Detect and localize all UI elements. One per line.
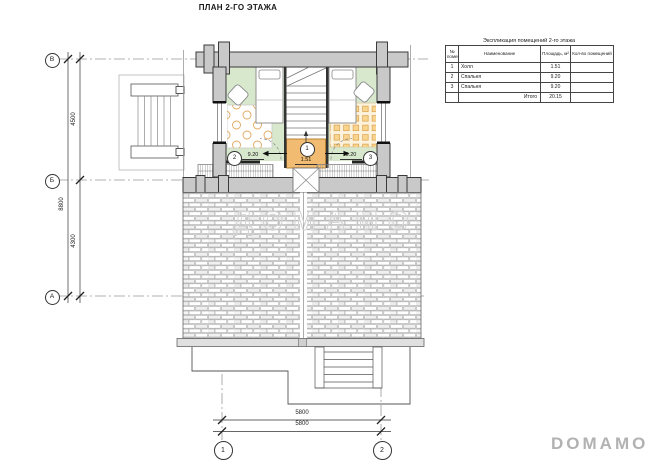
schedule-cell-num: 2	[446, 73, 459, 83]
schedule-cell-count	[571, 73, 614, 83]
schedule-cell-name: Спальня	[459, 83, 541, 93]
schedule-cell-count	[571, 63, 614, 73]
schedule-cell-area: 1.51	[541, 63, 571, 73]
room-number-bedroom-left: 2	[227, 151, 242, 166]
room-schedule-table: № помещения Наименование Площадь, м² Кол…	[445, 45, 614, 103]
room-area-bedroom-left: 9.20	[242, 152, 264, 160]
schedule-header-count: Кол-во помещений	[571, 46, 614, 63]
dim-left-upper: 4500	[70, 99, 78, 139]
axis-col-left: 1	[214, 441, 233, 460]
schedule-row: 1 Холл 1.51	[446, 63, 614, 73]
schedule-total-empty2	[571, 93, 614, 103]
left-dimension-lines	[68, 52, 80, 303]
dim-left-lower: 4300	[70, 221, 78, 261]
axis-row-top: В	[45, 53, 60, 68]
floor-plan-drawing: ПЛАН 2-ГО ЭТАЖА В Б А 1 2 4500 8800 4300…	[0, 0, 658, 470]
room-number-bedroom-right: 3	[363, 151, 378, 166]
schedule-header-name: Наименование	[459, 46, 541, 63]
schedule-cell-num: 3	[446, 83, 459, 93]
schedule-cell-name: Спальня	[459, 73, 541, 83]
page-title: ПЛАН 2-ГО ЭТАЖА	[158, 3, 318, 12]
axis-row-bottom: А	[45, 290, 60, 305]
dim-left-total: 8800	[58, 184, 66, 224]
exterior-ladder	[119, 75, 184, 170]
schedule-total-row: Итого 20.15	[446, 93, 614, 103]
porch-landing	[293, 168, 319, 193]
schedule-cell-area: 9.20	[541, 73, 571, 83]
schedule-cell-name: Холл	[459, 63, 541, 73]
dim-bottom-inner: 5800	[282, 421, 322, 428]
schedule-total-value: 20.15	[541, 93, 571, 103]
brand-logo: DOMAMO	[551, 434, 648, 454]
axis-col-right: 2	[373, 441, 392, 460]
room-area-hall: 1.51	[295, 157, 317, 165]
schedule-header-area: Площадь, м²	[541, 46, 571, 63]
schedule-header-row: № помещения Наименование Площадь, м² Кол…	[446, 46, 614, 63]
schedule-cell-count	[571, 83, 614, 93]
schedule-cell-num: 1	[446, 63, 459, 73]
schedule-total-label: Итого	[459, 93, 541, 103]
dim-bottom-outer: 5800	[282, 410, 322, 417]
schedule-title: Экспликация помещений 2-го этажа	[445, 38, 613, 44]
schedule-row: 2 Спальня 9.20	[446, 73, 614, 83]
schedule-header-num: № помещения	[446, 46, 459, 63]
left-dimension-ticks	[64, 55, 84, 300]
schedule-total-empty	[446, 93, 459, 103]
schedule-row: 3 Спальня 9.20	[446, 83, 614, 93]
watermark-text: ДОМАМО	[233, 206, 419, 237]
entrance-stairs	[315, 347, 382, 388]
room-number-hall: 1	[300, 142, 315, 157]
room-area-bedroom-right: 9.20	[340, 152, 362, 160]
schedule-cell-area: 9.20	[541, 83, 571, 93]
